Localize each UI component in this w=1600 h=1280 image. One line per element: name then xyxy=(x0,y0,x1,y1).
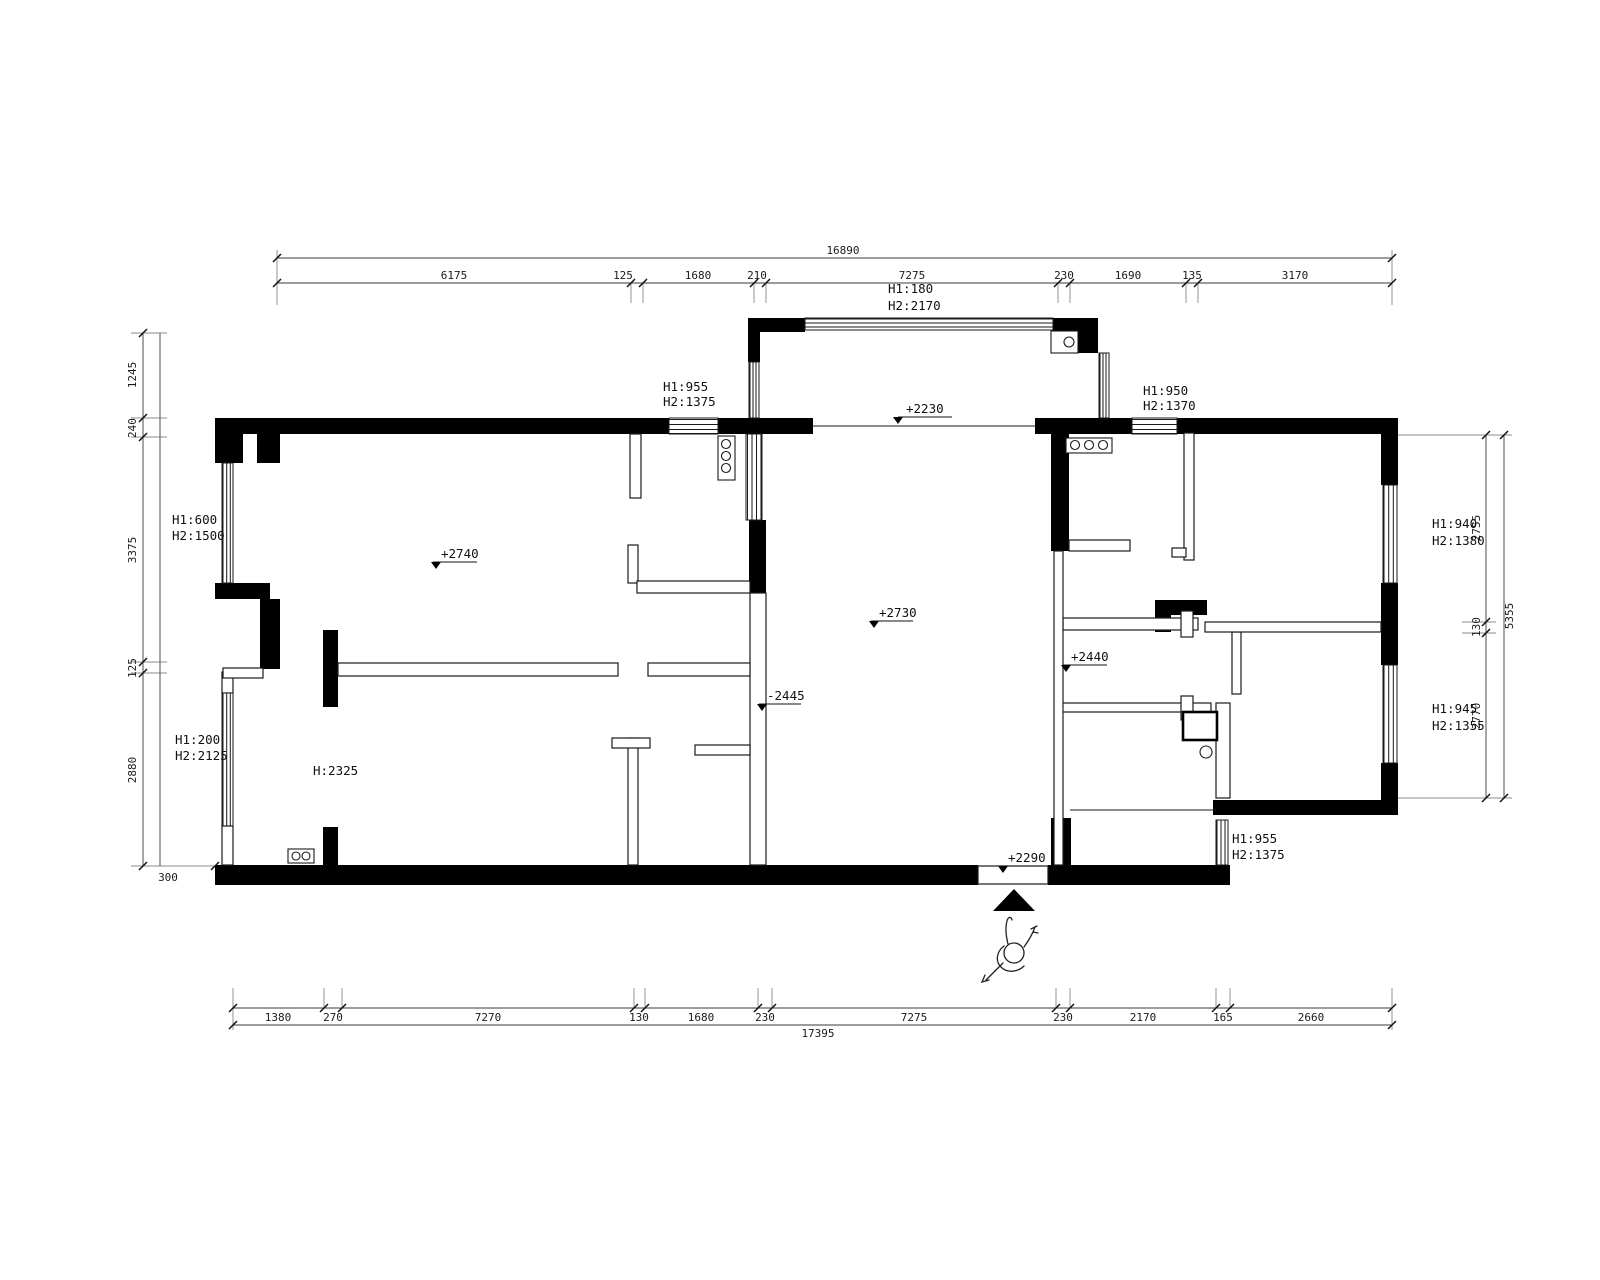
dim-top-seg-6: 1690 xyxy=(1115,269,1142,282)
dim-bottom-seg-10: 2660 xyxy=(1298,1011,1325,1024)
dim-left-seg-3: 125 xyxy=(126,658,139,678)
bedroom-left-window-h1: H1:200 xyxy=(175,732,220,747)
right-bottom-window xyxy=(1383,665,1397,763)
dim-top-seg-0: 6175 xyxy=(441,269,468,282)
kitchen-burners xyxy=(1066,438,1112,453)
dim-bottom-seg-4: 1680 xyxy=(688,1011,715,1024)
dim-right-total: 5355 xyxy=(1503,603,1516,630)
walls-layer xyxy=(215,318,1398,885)
kitchen-top-window-h1: H1:950 xyxy=(1143,383,1188,398)
floor-plan-svg: 16890 6175 125 1680 210 7275 230 1690 13… xyxy=(0,0,1600,1280)
level-marks xyxy=(431,417,1107,873)
radiator-bedroom-left xyxy=(288,849,314,863)
dim-top-seg-3: 210 xyxy=(747,269,767,282)
living-top-window xyxy=(669,418,718,434)
dim-top-seg-8: 3170 xyxy=(1282,269,1309,282)
dim-bottom-seg-8: 2170 xyxy=(1130,1011,1157,1024)
bedroom-left-window-h2: H2:2125 xyxy=(175,748,228,763)
dim-top-seg-2: 1680 xyxy=(685,269,712,282)
kitchen-top-window xyxy=(1132,418,1177,434)
right-top-window xyxy=(1383,485,1397,583)
living-left-window xyxy=(222,463,233,583)
living-top-window-h2: H2:1375 xyxy=(663,394,716,409)
dim-bottom-seg-2: 7270 xyxy=(475,1011,502,1024)
living-top-window-h1: H1:955 xyxy=(663,379,708,394)
dim-top-seg-1: 125 xyxy=(613,269,633,282)
dim-left-seg-1: 240 xyxy=(126,418,139,438)
dim-right-seg-1: 130 xyxy=(1470,617,1483,637)
dim-left-offset: 300 xyxy=(158,871,178,884)
left-door-height: H:2325 xyxy=(313,763,358,778)
balcony-window-h1: H1:180 xyxy=(888,281,933,296)
dim-bottom-seg-0: 1380 xyxy=(265,1011,292,1024)
dim-top-seg-7: 135 xyxy=(1182,269,1202,282)
dim-bottom-seg-5: 230 xyxy=(755,1011,775,1024)
bath-sink xyxy=(1183,712,1217,758)
level-hallway: +2440 xyxy=(1071,649,1109,664)
level-center: +2730 xyxy=(879,605,917,620)
dim-top-seg-5: 230 xyxy=(1054,269,1074,282)
dim-left-seg-0: 1245 xyxy=(126,362,139,389)
dim-left-seg-4: 2880 xyxy=(126,757,139,784)
person-figure xyxy=(982,917,1038,982)
dim-bottom-seg-7: 230 xyxy=(1053,1011,1073,1024)
dim-left-seg-2: 3375 xyxy=(126,537,139,564)
radiator-living xyxy=(718,436,735,480)
level-passage: -2445 xyxy=(767,688,805,703)
dim-bottom-total: 17395 xyxy=(801,1027,834,1040)
bath-window-h1: H1:955 xyxy=(1232,831,1277,846)
living-left-window-h2: H2:1500 xyxy=(172,528,225,543)
dim-bottom-seg-1: 270 xyxy=(323,1011,343,1024)
bath-window-h2: H2:1375 xyxy=(1232,847,1285,862)
partitions-layer xyxy=(223,426,1381,884)
living-left-window-h1: H1:600 xyxy=(172,512,217,527)
balcony-unit xyxy=(1051,331,1078,353)
dimensions-layer xyxy=(131,250,1512,1030)
dim-bottom-seg-6: 7275 xyxy=(901,1011,928,1024)
bath-window xyxy=(1216,820,1228,865)
dim-top-total: 16890 xyxy=(826,244,859,257)
floor-plan-page: 16890 6175 125 1680 210 7275 230 1690 13… xyxy=(0,0,1600,1280)
right-bottom-window-h2: H2:1355 xyxy=(1432,718,1485,733)
level-entry: +2290 xyxy=(1008,850,1046,865)
right-top-window-h2: H2:1380 xyxy=(1432,533,1485,548)
entry-arrow xyxy=(993,889,1035,911)
right-top-window-h1: H1:940 xyxy=(1432,516,1477,531)
balcony-window-h2: H2:2170 xyxy=(888,298,941,313)
balcony-window xyxy=(805,318,1053,330)
level-living: +2740 xyxy=(441,546,479,561)
kitchen-top-window-h2: H2:1370 xyxy=(1143,398,1196,413)
dim-bottom-seg-3: 130 xyxy=(629,1011,649,1024)
right-bottom-window-h1: H1:945 xyxy=(1432,701,1477,716)
entry-opening xyxy=(978,866,1048,884)
dim-bottom-seg-9: 165 xyxy=(1213,1011,1233,1024)
level-balcony: +2230 xyxy=(906,401,944,416)
